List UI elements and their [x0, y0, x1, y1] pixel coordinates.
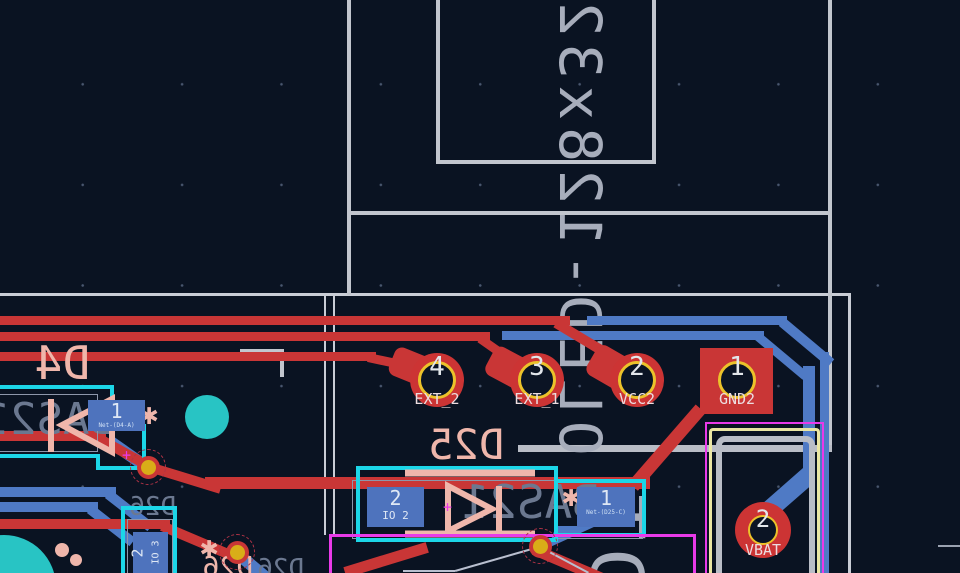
d26-pad-number: 2 [128, 548, 146, 557]
d25-ref-text[interactable]: D25 [384, 422, 504, 468]
d26-pad[interactable]: 2 IO 3 [133, 532, 168, 573]
pad3-number: 3 [517, 354, 557, 380]
pad4-number: 4 [417, 354, 457, 380]
d4-pad1-number: 1 [88, 400, 145, 422]
d25-pad2-number: 2 [367, 487, 424, 509]
zone-outline-magenta[interactable] [329, 534, 696, 573]
d25-pad1-net: Net-(D25-C) [577, 509, 635, 516]
d25-pad1-number: 1 [577, 487, 635, 509]
via3[interactable] [226, 541, 249, 564]
d25-pad2[interactable]: 2 IO 2 [367, 487, 424, 527]
d4-ref-text[interactable]: D4 [10, 338, 90, 388]
d25-pad2-net: IO 2 [367, 509, 424, 522]
pad3-net-label: EXT_1 [503, 392, 571, 407]
d4-anchor-cross-icon: + [122, 448, 131, 463]
d25-anchor-cross-icon: + [443, 500, 452, 515]
pad1-number: 1 [717, 354, 757, 380]
pad2-net-label: VCC2 [603, 392, 671, 407]
d4-pad1-net: Net-(D4-A) [88, 422, 145, 429]
via2[interactable] [529, 535, 552, 558]
d25-diode-triangle [448, 486, 492, 531]
pcb-editor-canvas: OLED-128x32 DT BAS21 BAS21 D26 D26 [0, 0, 960, 573]
pad2-number: 2 [617, 354, 657, 380]
via1[interactable] [137, 456, 160, 479]
vbat-gray-outline [716, 436, 815, 573]
pad1-net-label: GND2 [703, 392, 771, 407]
d4-pad1[interactable]: 1 Net-(D4-A) [88, 400, 145, 431]
d26-silk-dot2 [70, 554, 82, 566]
via3-pin-marker-icon: ✱ [200, 533, 218, 563]
d25-pad1[interactable]: 1 Net-(D25-C) [577, 487, 635, 527]
pad4-net-label: EXT_2 [403, 392, 471, 407]
d26-silk-dot1 [55, 543, 69, 557]
d26-pad-net: IO 3 [151, 540, 162, 564]
